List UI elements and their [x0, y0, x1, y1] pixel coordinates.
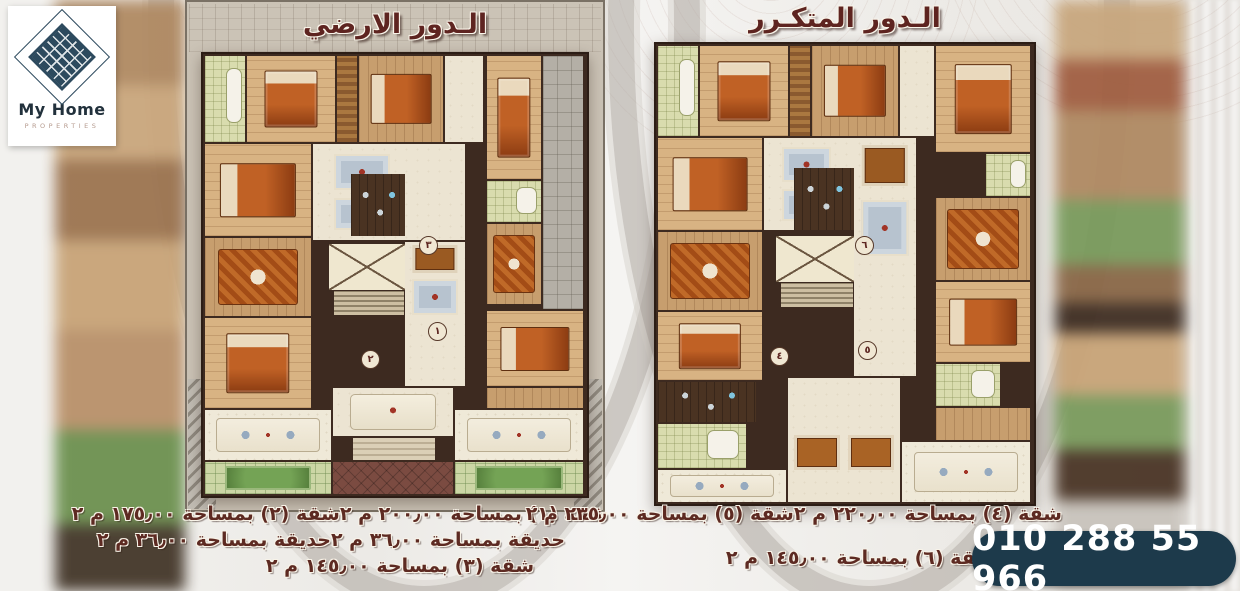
bedroom: [359, 56, 443, 142]
apartment-2-area: شقة (٢) بمساحة ١٧٥٫٠٠ م ٢: [72, 503, 340, 525]
phone-number: 010 288 55 966: [972, 519, 1236, 591]
stairs: [333, 290, 405, 316]
dressing-room: [936, 408, 1030, 440]
bedroom: [658, 312, 762, 380]
bedroom: [487, 56, 541, 179]
logo-subtitle: Properties: [8, 122, 116, 130]
kitchen: [794, 168, 854, 230]
bedroom: [936, 282, 1030, 362]
bedroom: [936, 46, 1030, 152]
ground-floor-plan: الـدور الارضي: [185, 0, 605, 512]
closet: [337, 56, 357, 142]
elevator: [774, 234, 856, 284]
left-plan-info-line3: شقة (٣) بمساحة ١٤٥٫٠٠ م ٢: [250, 555, 550, 577]
garden-1-area: حديقة بمساحة ٣٦٫٠٠ م ٢: [331, 529, 565, 551]
bathroom: [658, 46, 698, 136]
apartment-6-area: شقة (٦) بمساحة ١٤٥٫٠٠ م ٢: [726, 547, 994, 569]
right-plan-info-line2: شقة (٦) بمساحة ١٤٥٫٠٠ م ٢: [710, 547, 1010, 569]
apartment-3-area: شقة (٣) بمساحة ١٤٥٫٠٠ م ٢: [266, 555, 534, 577]
bathroom: [986, 154, 1030, 196]
bedroom: [247, 56, 335, 142]
bathroom: [487, 181, 541, 222]
stairs: [780, 282, 854, 308]
sitting-area: [333, 388, 453, 436]
dressing-room: [487, 388, 583, 408]
reception: [902, 442, 1030, 502]
building-outline: ٣ ١ ٢: [201, 52, 589, 498]
typical-floor-title: الـدور المتكـرر: [749, 3, 941, 34]
dining-hall: [854, 138, 916, 376]
garden: [455, 462, 583, 494]
living-room: [205, 238, 311, 316]
bedroom: [812, 46, 898, 136]
phone-banner: 010 288 55 966: [972, 531, 1236, 586]
reception: [205, 410, 331, 460]
kitchen: [658, 382, 756, 422]
elevator: [327, 242, 407, 292]
foyer: [445, 56, 483, 142]
garden: [205, 462, 331, 494]
terrace: [543, 56, 583, 309]
bedroom: [487, 311, 583, 386]
garden-2-area: حديقة بمساحة ٣٦٫٠٠ م ٢: [97, 529, 331, 551]
bathroom: [658, 424, 746, 468]
blurred-plan-strip-right: [1055, 0, 1185, 591]
bedroom: [658, 138, 762, 230]
bathroom: [205, 56, 245, 142]
bedroom: [205, 144, 311, 236]
bedroom: [700, 46, 788, 136]
living-room: [658, 232, 762, 310]
unit-4-badge: ٤: [770, 347, 789, 366]
kitchen: [351, 174, 405, 236]
apartment-5-area: شقة (٥) بمساحة ٢٣٥٫٠٠ م ٢: [526, 503, 794, 525]
ground-floor-title: الـدور الارضي: [303, 9, 487, 40]
entrance: [333, 462, 453, 494]
company-logo: My Home Properties: [8, 6, 116, 146]
dining-area: [788, 378, 900, 502]
unit-2-badge: ٢: [361, 350, 380, 369]
dining-hall: [405, 242, 465, 386]
closet: [790, 46, 810, 136]
foyer: [900, 46, 934, 136]
living-room: [487, 224, 541, 304]
left-plan-info-line2: حديقة بمساحة ٣٦٫٠٠ م ٢ حديقة بمساحة ٣٦٫٠…: [205, 529, 565, 551]
reception: [455, 410, 583, 460]
flyer-canvas: الـدور الارضي: [0, 0, 1240, 591]
living-room: [936, 198, 1030, 280]
bedroom: [205, 318, 311, 408]
logo-diamond-icon: [23, 18, 101, 96]
unit-3-badge: ٣: [419, 236, 438, 255]
reception: [658, 470, 786, 502]
bathroom: [936, 364, 1000, 406]
unit-6-badge: ٦: [855, 236, 874, 255]
typical-floor-plan: الـدور المتكـرر: [650, 0, 1040, 512]
unit-1-badge: ١: [428, 322, 447, 341]
unit-5-badge: ٥: [858, 341, 877, 360]
building-outline: ٦ ٤ ٥: [654, 42, 1036, 506]
entrance-steps: [353, 438, 435, 460]
